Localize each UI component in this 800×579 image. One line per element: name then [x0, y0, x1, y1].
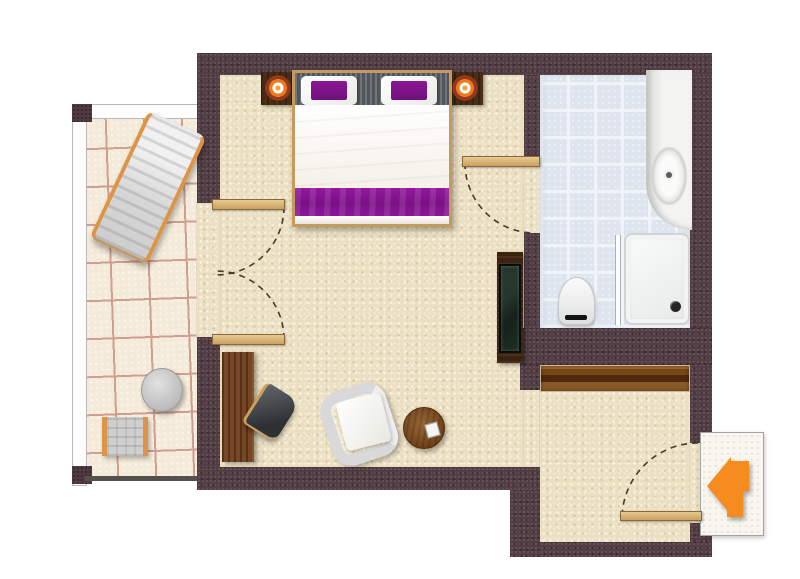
- shower-glass-panel: [615, 235, 621, 325]
- balcony-chair: [102, 417, 148, 456]
- bed-foot-sheet: [295, 216, 449, 224]
- bathroom-door-leaf: [462, 156, 540, 167]
- pillow-left: [301, 76, 357, 105]
- shower-tray: [624, 233, 690, 325]
- entrance-door-leaf: [620, 511, 702, 521]
- balcony-door-leaf-bottom: [212, 334, 285, 345]
- entrance-arrow-icon: [707, 457, 749, 517]
- tv-cabinet: [497, 252, 523, 363]
- bedside-lamp-right: [452, 75, 478, 101]
- pillow-right: [381, 76, 437, 105]
- shower-drain: [670, 301, 681, 312]
- sink-drain: [666, 172, 672, 178]
- double-bed: [292, 70, 452, 227]
- purple-cushion-right: [391, 81, 427, 100]
- balcony-door-leaf-top: [212, 199, 285, 210]
- wardrobe: [540, 365, 690, 392]
- toilet: [558, 277, 595, 325]
- entrance-arrow-tail-upper: [730, 461, 749, 491]
- bedside-lamp-left: [265, 75, 291, 101]
- toilet-slot: [565, 315, 587, 320]
- entrance-arrow-tail-lower: [727, 490, 743, 517]
- duvet: [295, 105, 449, 188]
- purple-bed-runner: [295, 188, 449, 216]
- entrance-door-swing-arc: [622, 443, 698, 519]
- tv-screen: [499, 264, 521, 353]
- floor-plan: [0, 0, 800, 579]
- purple-cushion-left: [311, 81, 347, 100]
- balcony-door-bottom-swing-arc: [216, 271, 284, 339]
- balcony-door-top-swing-arc: [216, 207, 284, 275]
- bathroom-door-swing-arc: [465, 163, 535, 233]
- balcony-table: [141, 368, 183, 412]
